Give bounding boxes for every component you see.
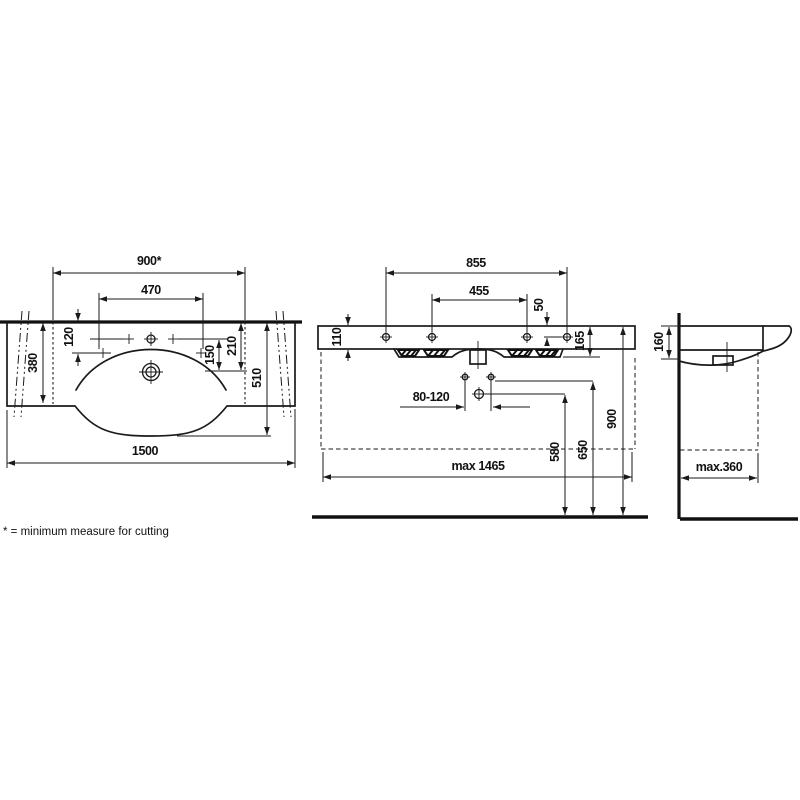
dim-label-210: 210	[225, 336, 239, 356]
front-dimensions	[323, 267, 632, 515]
dim-label-50: 50	[532, 298, 546, 311]
break-line	[283, 311, 291, 417]
dim-label-650: 650	[576, 440, 590, 460]
drain-hole	[139, 360, 163, 384]
basin-front-outline	[318, 326, 635, 349]
dim-label-900-height: 900	[605, 409, 619, 429]
dim-label-580: 580	[548, 442, 562, 462]
dim-label-470: 470	[141, 283, 161, 297]
break-line	[14, 311, 22, 417]
dim-label-855: 855	[466, 256, 486, 270]
technical-drawing-canvas	[0, 0, 800, 800]
dim-label-80-120: 80-120	[413, 390, 450, 404]
dim-label-165: 165	[573, 331, 587, 351]
dim-label-380: 380	[26, 353, 40, 373]
dim-label-160: 160	[652, 332, 666, 352]
dim-label-900-min-cut: 900*	[137, 254, 161, 268]
dim-label-150: 150	[203, 345, 217, 365]
break-line	[276, 311, 284, 417]
dim-label-510: 510	[250, 368, 264, 388]
dim-label-455: 455	[469, 284, 489, 298]
side-view	[661, 313, 798, 519]
basin-underside	[394, 341, 563, 369]
dim-label-max-1465: max 1465	[451, 459, 504, 473]
optional-tap-hole-marks	[98, 334, 206, 358]
dim-label-110: 110	[330, 328, 344, 347]
front-view	[312, 267, 648, 517]
dim-label-1500: 1500	[132, 444, 158, 458]
tap-hole	[144, 332, 158, 346]
dim-label-max-360: max.360	[696, 460, 743, 474]
dim-label-120: 120	[62, 327, 76, 347]
washbasin-dimension-drawing: 900* 470 120 380 150 210 510 1500 855 45…	[0, 0, 800, 800]
basin-side-outline	[679, 326, 791, 372]
footnote: * = minimum measure for cutting	[3, 526, 169, 538]
